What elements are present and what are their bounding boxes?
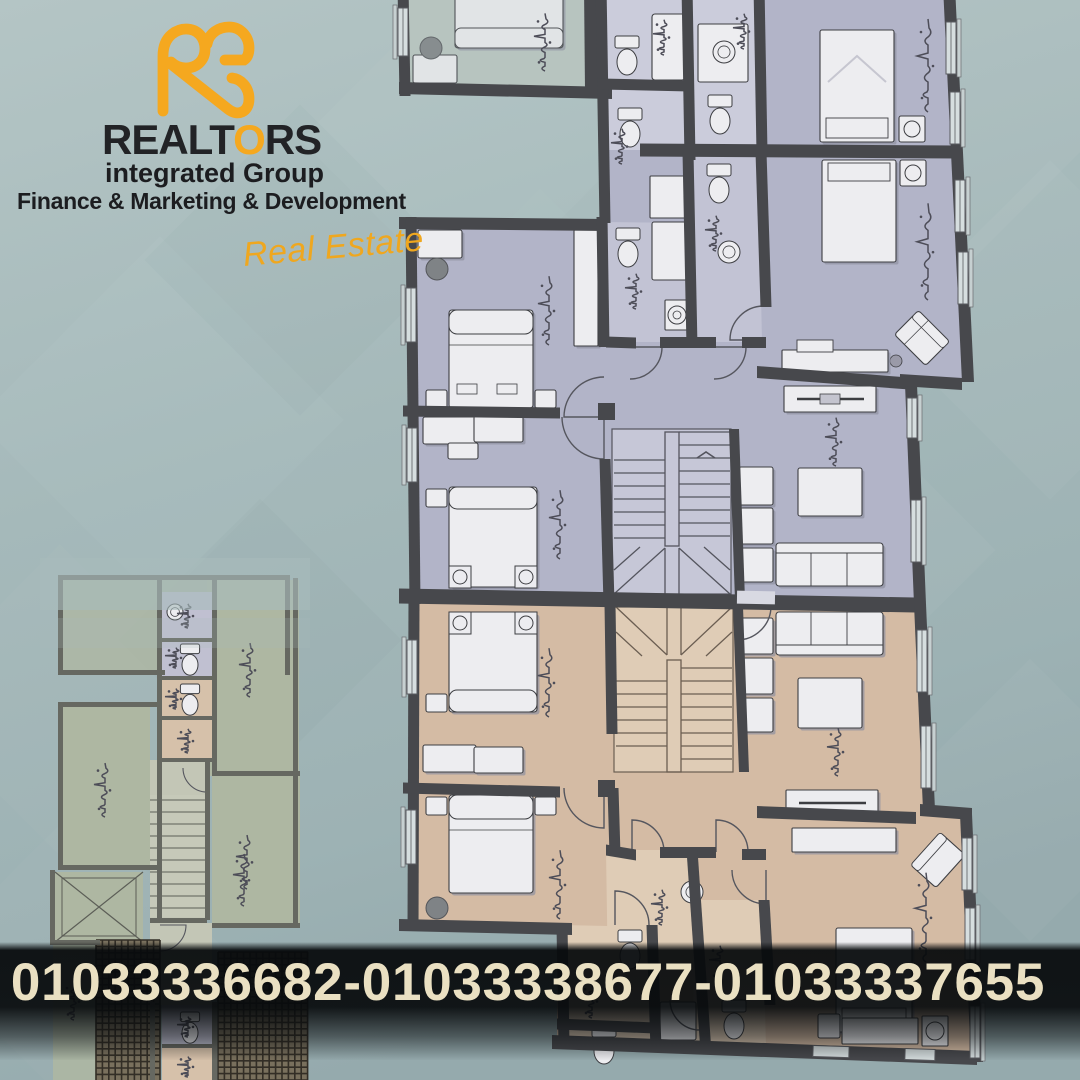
- svg-text:01033336682-01033338677-010333: 01033336682-01033338677-01033337655: [11, 953, 1045, 1012]
- svg-text:integrated Group: integrated Group: [105, 158, 324, 188]
- svg-text:REALTORS: REALTORS: [102, 116, 321, 163]
- svg-text:Finance & Marketing & Developm: Finance & Marketing & Development: [17, 188, 406, 214]
